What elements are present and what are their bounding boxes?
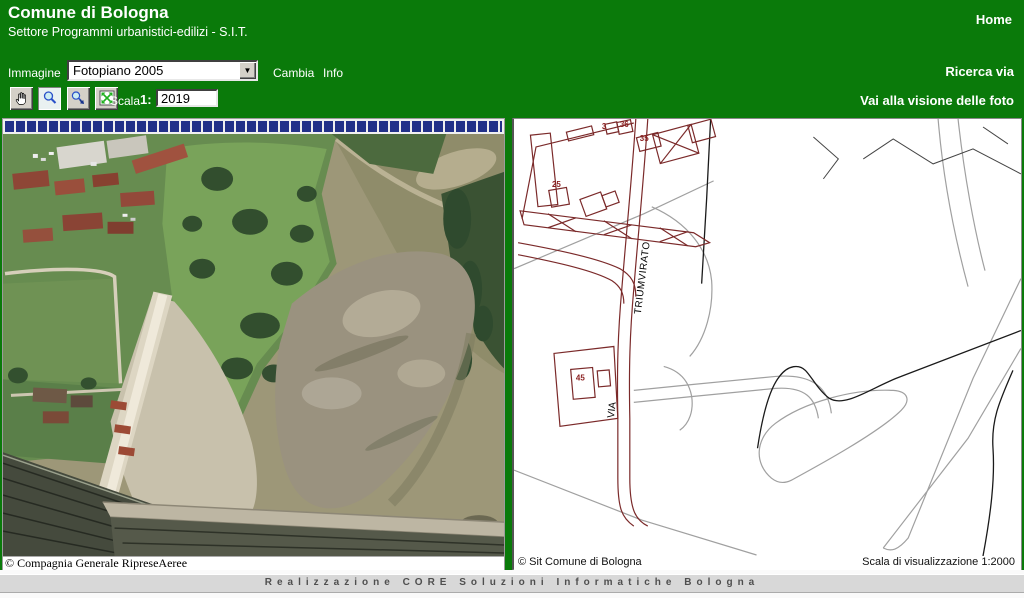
magnifier-icon [42,93,58,110]
street-label-via: VIA [606,401,619,419]
home-link[interactable]: Home [976,12,1012,27]
aerial-photo[interactable] [3,134,504,556]
left-map-attribution: © Compagnia Generale RipreseAeree [3,556,504,571]
vector-map[interactable]: TRIUMVIRATO VIA 25 3 36 35 45 [514,119,1021,556]
hand-icon [14,93,30,110]
cambia-link[interactable]: Cambia [273,66,314,80]
footer-credit: Realizzazione CORE Soluzioni Informatich… [0,574,1024,593]
page-title: Comune di Bologna [8,3,169,23]
building-number: 3 [602,122,607,131]
vector-map-panel[interactable]: TRIUMVIRATO VIA 25 3 36 35 45 © Sit Comu… [512,118,1022,570]
scala-ratio-label: 1: [140,92,152,107]
scale-input[interactable] [156,89,218,107]
building-number: 45 [576,373,585,382]
magnifier-arrow-icon [70,93,86,110]
info-link[interactable]: Info [323,66,343,80]
image-layer-value: Fotopiano 2005 [73,63,163,78]
map-toolbar [10,87,119,111]
immagine-label: Immagine [8,66,61,80]
visualization-scale-text: Scala di visualizzazione 1:2000 [862,556,1021,569]
ricerca-via-link[interactable]: Ricerca via [945,64,1014,79]
building-number: 35 [640,134,649,143]
dropdown-arrow-icon[interactable]: ▼ [239,62,256,79]
progress-bar [3,119,504,134]
vai-foto-link[interactable]: Vai alla visione delle foto [860,93,1014,108]
page-subtitle: Settore Programmi urbanistici-edilizi - … [8,25,248,39]
aerial-photo-panel[interactable]: © Compagnia Generale RipreseAeree [2,118,505,570]
zoom-area-button[interactable] [67,87,90,110]
zoom-button[interactable] [38,87,61,110]
building-number: 25 [552,180,561,189]
bottom-zone: Realizzazione CORE Soluzioni Informatich… [0,570,1024,598]
right-map-attribution-bar: © Sit Comune di Bologna Scala di visuali… [514,556,1021,570]
right-map-attribution: © Sit Comune di Bologna [514,556,642,569]
pan-button[interactable] [10,87,33,110]
scala-label: Scala [110,94,140,108]
image-layer-select[interactable]: Fotopiano 2005 ▼ [67,60,258,81]
building-number: 36 [620,120,629,129]
